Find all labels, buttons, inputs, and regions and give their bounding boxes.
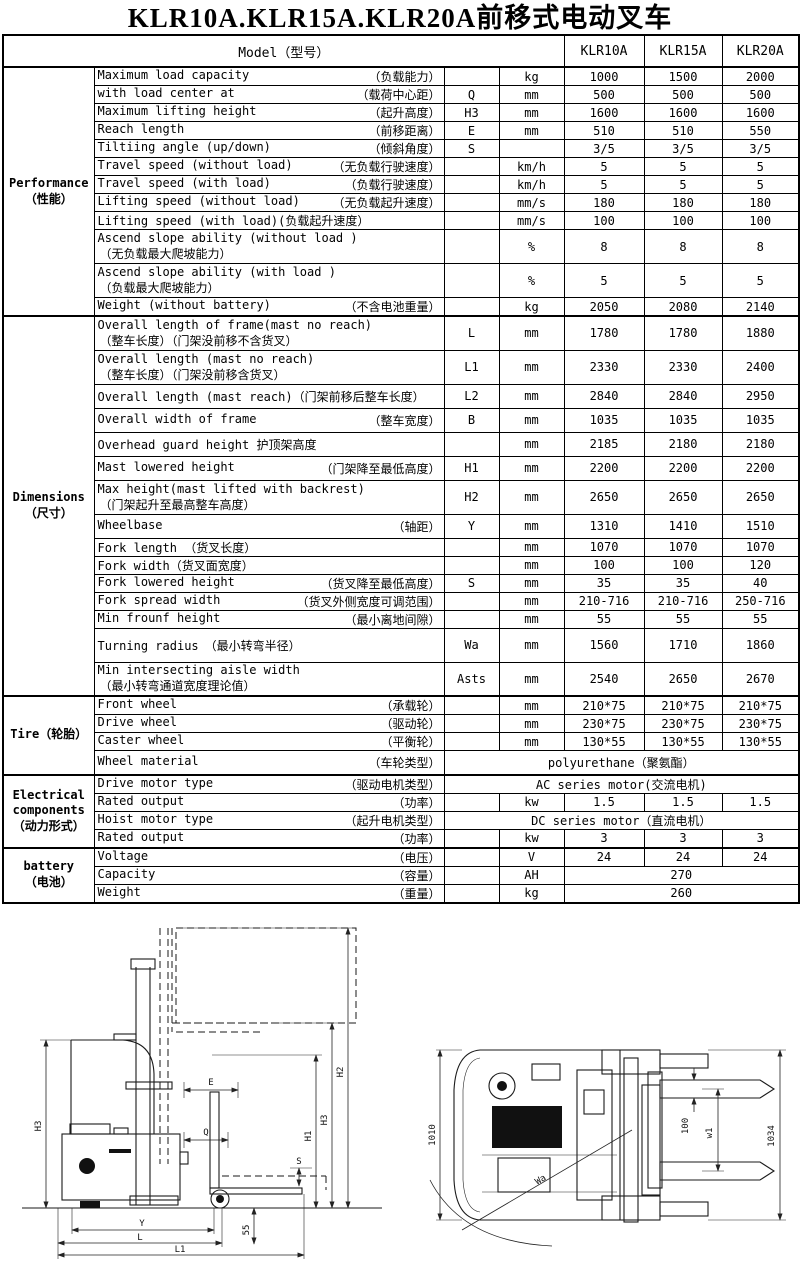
spec-value: 500 <box>644 86 722 104</box>
spec-value: 24 <box>644 848 722 867</box>
spec-unit: mm <box>499 456 564 480</box>
spec-value: 2180 <box>644 432 722 456</box>
spec-unit: mm <box>499 538 564 556</box>
spec-unit: mm <box>499 432 564 456</box>
spec-value: 130*55 <box>564 733 644 751</box>
dimension-ground-clearance: 55 <box>242 1208 254 1244</box>
spec-symbol: Y <box>444 514 499 538</box>
spec-value: 130*55 <box>644 733 722 751</box>
dim-label-100: 100 <box>681 1117 691 1133</box>
spec-row: Lifting speed (with load)(负载起升速度）mm/s100… <box>3 212 799 230</box>
spec-value: 500 <box>564 86 644 104</box>
spec-unit: mm <box>499 662 564 696</box>
spec-label: Fork length （货叉长度） <box>94 538 444 556</box>
spec-row: Tiltiing angle (up/down)（倾斜角度）S3/53/53/5 <box>3 140 799 158</box>
spec-value: 5 <box>564 158 644 176</box>
spec-merged-value: polyurethane（聚氨酯） <box>444 751 799 775</box>
spec-value: 1500 <box>644 67 722 86</box>
spec-symbol <box>444 212 499 230</box>
dim-label-s: S <box>296 1157 301 1167</box>
spec-value: 180 <box>564 194 644 212</box>
spec-value: 2180 <box>722 432 799 456</box>
spec-symbol: Q <box>444 86 499 104</box>
spec-value: 1600 <box>644 104 722 122</box>
side-view-drawing: E Q S 55 Y L <box>14 912 400 1262</box>
spec-value: 1000 <box>564 67 644 86</box>
dimension-q: Q <box>184 1128 228 1148</box>
category-0: Performance（性能） <box>3 67 94 316</box>
spec-unit: mm <box>499 408 564 432</box>
spec-unit: mm <box>499 86 564 104</box>
spec-value: 180 <box>722 194 799 212</box>
spec-symbol <box>444 696 499 715</box>
spec-value: 5 <box>644 158 722 176</box>
spec-unit: kg <box>499 298 564 317</box>
spec-value: 5 <box>564 176 644 194</box>
spec-value: 2650 <box>722 480 799 514</box>
spec-value: 510 <box>644 122 722 140</box>
spec-label: with load center at（载荷中心距） <box>94 86 444 104</box>
spec-unit: mm <box>499 384 564 408</box>
spec-label: Lifting speed (with load)(负载起升速度） <box>94 212 444 230</box>
spec-value: 1070 <box>722 538 799 556</box>
spec-value: 5 <box>722 264 799 298</box>
spec-symbol: H2 <box>444 480 499 514</box>
spec-value: 3/5 <box>722 140 799 158</box>
spec-unit: mm <box>499 480 564 514</box>
spec-symbol <box>444 158 499 176</box>
spec-value: 210*75 <box>722 696 799 715</box>
spec-value: 2330 <box>564 350 644 384</box>
spec-unit: mm <box>499 696 564 715</box>
spec-symbol <box>444 67 499 86</box>
spec-row: Mast lowered height（门架降至最低高度）H1mm2200220… <box>3 456 799 480</box>
spec-unit: mm <box>499 574 564 592</box>
spec-label: Tiltiing angle (up/down)（倾斜角度） <box>94 140 444 158</box>
spec-symbol <box>444 733 499 751</box>
spec-row: Overhead guard height 护顶架高度mm21852180218… <box>3 432 799 456</box>
dim-label-w1: w1 <box>705 1127 715 1138</box>
spec-value: 2840 <box>644 384 722 408</box>
spec-symbol <box>444 848 499 867</box>
truck-body-side <box>62 1034 188 1208</box>
spec-label: Maximum load capacity（负载能力） <box>94 67 444 86</box>
spec-label: Drive wheel（驱动轮） <box>94 715 444 733</box>
spec-symbol <box>444 538 499 556</box>
spec-unit: mm <box>499 610 564 628</box>
spec-value: 230*75 <box>722 715 799 733</box>
dimension-s: S <box>290 1157 312 1186</box>
spec-label: Mast lowered height（门架降至最低高度） <box>94 456 444 480</box>
spec-value: 35 <box>564 574 644 592</box>
spec-label: Capacity（容量） <box>94 866 444 884</box>
spec-label: Travel speed (without load)（无负载行驶速度） <box>94 158 444 176</box>
spec-value: 100 <box>722 212 799 230</box>
spec-unit: mm <box>499 556 564 574</box>
spec-value: 8 <box>644 230 722 264</box>
spec-value: 1600 <box>722 104 799 122</box>
spec-value: 2650 <box>644 480 722 514</box>
spec-unit: km/h <box>499 176 564 194</box>
spec-row: Overall length (mast reach)（门架前移后整车长度）L2… <box>3 384 799 408</box>
dimension-l: L <box>58 1208 222 1259</box>
spec-value: 2840 <box>564 384 644 408</box>
spec-merged-value: 260 <box>564 884 799 903</box>
spec-symbol: L <box>444 316 499 350</box>
spec-value: 230*75 <box>564 715 644 733</box>
spec-value: 1310 <box>564 514 644 538</box>
spec-row: Weight（重量）kg260 <box>3 884 799 903</box>
spec-value: 2140 <box>722 298 799 317</box>
spec-unit: kw <box>499 829 564 848</box>
spec-symbol <box>444 298 499 317</box>
spec-value: 2650 <box>564 480 644 514</box>
dim-label-e: E <box>208 1078 213 1088</box>
spec-unit: mm <box>499 514 564 538</box>
spec-label: Front wheel（承载轮） <box>94 696 444 715</box>
spec-value: 500 <box>722 86 799 104</box>
spec-row: with load center at（载荷中心距）Qmm500500500 <box>3 86 799 104</box>
model-klr15a: KLR15A <box>644 35 722 67</box>
category-2: Tire（轮胎） <box>3 696 94 775</box>
dim-label-h3-right: H3 <box>320 1114 330 1125</box>
spec-row: Fork length （货叉长度）mm107010701070 <box>3 538 799 556</box>
spec-value: 2000 <box>722 67 799 86</box>
spec-row: Min intersecting aisle width（最小转弯通道宽度理论值… <box>3 662 799 696</box>
spec-row: Hoist motor type（起升电机类型）DC series motor（… <box>3 811 799 829</box>
spec-row: Ascend slope ability (without load )（无负载… <box>3 230 799 264</box>
spec-symbol <box>444 176 499 194</box>
top-view-drawing: 1010 100 w1 1034 Wa <box>402 1030 792 1254</box>
spec-symbol: L2 <box>444 384 499 408</box>
spec-row: Overall width of frame（整车宽度）Bmm103510351… <box>3 408 799 432</box>
spec-value: 210*75 <box>564 696 644 715</box>
spec-symbol: E <box>444 122 499 140</box>
spec-unit: kg <box>499 884 564 903</box>
spec-label: Hoist motor type（起升电机类型） <box>94 811 444 829</box>
dim-label-1034: 1034 <box>767 1125 777 1147</box>
spec-row: battery（电池）Voltage（电压）V242424 <box>3 848 799 867</box>
dimension-fork-width: 100 <box>681 1068 694 1134</box>
spec-symbol <box>444 556 499 574</box>
spec-row: Max height(mast lifted with backrest)（门架… <box>3 480 799 514</box>
spec-unit: mm <box>499 104 564 122</box>
spec-unit: mm <box>499 350 564 384</box>
spec-value: 2400 <box>722 350 799 384</box>
raised-load-dashed <box>172 928 356 1032</box>
spec-value: 1510 <box>722 514 799 538</box>
dimension-y: Y <box>72 1208 214 1234</box>
spec-value: 100 <box>644 556 722 574</box>
spec-value: 2950 <box>722 384 799 408</box>
spec-value: 100 <box>564 212 644 230</box>
spec-value: 55 <box>564 610 644 628</box>
spec-row: Rated output（功率）kw1.51.51.5 <box>3 793 799 811</box>
category-3: Electricalcomponents（动力形式） <box>3 775 94 848</box>
table-header-row: Model（型号） KLR10A KLR15A KLR20A <box>3 35 799 67</box>
spec-label: Wheel material（车轮类型） <box>94 751 444 775</box>
dimension-h1: H1 <box>212 1055 322 1208</box>
spec-value: 3 <box>564 829 644 848</box>
spec-value: 100 <box>564 556 644 574</box>
spec-row: Reach length（前移距离）Emm510510550 <box>3 122 799 140</box>
spec-value: 24 <box>564 848 644 867</box>
spec-value: 2670 <box>722 662 799 696</box>
spec-label: Rated output（功率） <box>94 829 444 848</box>
spec-label: Overhead guard height 护顶架高度 <box>94 432 444 456</box>
spec-row: Rated output（功率）kw333 <box>3 829 799 848</box>
spec-value: 5 <box>644 176 722 194</box>
spec-row: Fork width（货叉面宽度）mm100100120 <box>3 556 799 574</box>
spec-value: 5 <box>722 176 799 194</box>
spec-label: Maximum lifting height（起升高度） <box>94 104 444 122</box>
spec-value: 24 <box>722 848 799 867</box>
spec-unit: % <box>499 230 564 264</box>
spec-value: 210*75 <box>644 696 722 715</box>
spec-unit: mm <box>499 122 564 140</box>
spec-value: 1035 <box>722 408 799 432</box>
spec-value: 1.5 <box>722 793 799 811</box>
spec-symbol: Asts <box>444 662 499 696</box>
spec-row: Min frounf height（最小离地间隙）mm555555 <box>3 610 799 628</box>
dim-label-l: L <box>137 1233 142 1243</box>
spec-value: 2080 <box>644 298 722 317</box>
spec-unit: mm <box>499 592 564 610</box>
dimension-fork-spread: w1 <box>702 1089 724 1171</box>
dim-label-l1: L1 <box>175 1245 186 1255</box>
spec-row: Travel speed (without load)（无负载行驶速度）km/h… <box>3 158 799 176</box>
dim-label-h1: H1 <box>304 1130 314 1141</box>
spec-value: 1780 <box>644 316 722 350</box>
spec-row: Fork spread width（货叉外侧宽度可调范围）mm210-71621… <box>3 592 799 610</box>
spec-label: Overall length of frame(mast no reach)（整… <box>94 316 444 350</box>
category-1: Dimensions（尺寸） <box>3 316 94 696</box>
spec-unit: V <box>499 848 564 867</box>
spec-value: 550 <box>722 122 799 140</box>
spec-value: 40 <box>722 574 799 592</box>
spec-value: 1600 <box>564 104 644 122</box>
spec-row: Capacity（容量）AH270 <box>3 866 799 884</box>
spec-label: Wheelbase（轴距） <box>94 514 444 538</box>
lowered-fork-side <box>210 1092 326 1208</box>
page-title: KLR10A.KLR15A.KLR20A前移式电动叉车 <box>0 0 800 34</box>
spec-value: 1070 <box>644 538 722 556</box>
spec-value: 2050 <box>564 298 644 317</box>
spec-label: Weight（重量） <box>94 884 444 903</box>
spec-value: 35 <box>644 574 722 592</box>
category-4: battery（电池） <box>3 848 94 903</box>
truck-body-top <box>454 1050 620 1220</box>
dim-label-y: Y <box>139 1219 145 1229</box>
spec-row: Wheelbase（轴距）Ymm131014101510 <box>3 514 799 538</box>
spec-label: Ascend slope ability (with load )（负载最大爬坡… <box>94 264 444 298</box>
spec-unit: mm/s <box>499 194 564 212</box>
spec-label: Min intersecting aisle width（最小转弯通道宽度理论值… <box>94 662 444 696</box>
spec-label: Caster wheel（平衡轮） <box>94 733 444 751</box>
spec-row: Weight (without battery)（不含电池重量）kg205020… <box>3 298 799 317</box>
spec-label: Weight (without battery)（不含电池重量） <box>94 298 444 317</box>
spec-label: Reach length（前移距离） <box>94 122 444 140</box>
spec-unit: AH <box>499 866 564 884</box>
spec-row: Wheel material（车轮类型）polyurethane（聚氨酯） <box>3 751 799 775</box>
spec-unit: mm/s <box>499 212 564 230</box>
dimension-h2: H2 <box>176 928 354 1208</box>
spec-value: 5 <box>564 264 644 298</box>
spec-merged-value: AC series motor(交流电机) <box>444 775 799 794</box>
spec-symbol: B <box>444 408 499 432</box>
dimension-h3-left: H3 <box>34 1040 71 1208</box>
spec-value: 2200 <box>722 456 799 480</box>
spec-value: 1410 <box>644 514 722 538</box>
spec-value: 1070 <box>564 538 644 556</box>
spec-symbol <box>444 829 499 848</box>
spec-row: Lifting speed (without load)（无负载起升速度）mm/… <box>3 194 799 212</box>
spec-value: 1035 <box>564 408 644 432</box>
spec-value: 2540 <box>564 662 644 696</box>
spec-row: Turning radius （最小转弯半径）Wamm156017101860 <box>3 628 799 662</box>
spec-value: 3 <box>722 829 799 848</box>
spec-label: Fork width（货叉面宽度） <box>94 556 444 574</box>
spec-value: 120 <box>722 556 799 574</box>
spec-value: 3/5 <box>564 140 644 158</box>
dimension-h3-right: H3 <box>272 1023 338 1208</box>
spec-label: Overall length (mast no reach)（整车长度）（门架没… <box>94 350 444 384</box>
spec-unit: % <box>499 264 564 298</box>
spec-unit: mm <box>499 316 564 350</box>
spec-label: Fork lowered height（货叉降至最低高度） <box>94 574 444 592</box>
spec-label: Lifting speed (without load)（无负载起升速度） <box>94 194 444 212</box>
spec-merged-value: DC series motor（直流电机） <box>444 811 799 829</box>
spec-value: 1880 <box>722 316 799 350</box>
spec-value: 3/5 <box>644 140 722 158</box>
spec-value: 2650 <box>644 662 722 696</box>
mast-side <box>126 928 178 1205</box>
spec-row: Ascend slope ability (with load )（负载最大爬坡… <box>3 264 799 298</box>
spec-row: Electricalcomponents（动力形式）Drive motor ty… <box>3 775 799 794</box>
spec-value: 2200 <box>644 456 722 480</box>
spec-symbol <box>444 715 499 733</box>
spec-value: 100 <box>644 212 722 230</box>
spec-unit: kg <box>499 67 564 86</box>
spec-unit: km/h <box>499 158 564 176</box>
spec-label: Turning radius （最小转弯半径） <box>94 628 444 662</box>
spec-row: Fork lowered height（货叉降至最低高度）Smm353540 <box>3 574 799 592</box>
spec-row: Performance（性能）Maximum load capacity（负载能… <box>3 67 799 86</box>
dim-label-h3-left: H3 <box>34 1120 44 1131</box>
spec-value: 2200 <box>564 456 644 480</box>
spec-row: Maximum lifting height（起升高度）H3mm16001600… <box>3 104 799 122</box>
spec-label: Drive motor type（驱动电机类型） <box>94 775 444 794</box>
spec-label: Voltage（电压） <box>94 848 444 867</box>
spec-value: 1860 <box>722 628 799 662</box>
spec-label: Rated output（功率） <box>94 793 444 811</box>
dimension-e: E <box>184 1078 238 1098</box>
forks-top <box>660 1080 774 1180</box>
mast-carriage-top <box>624 1058 662 1222</box>
spec-unit: mm <box>499 628 564 662</box>
spec-value: 180 <box>644 194 722 212</box>
technical-drawings: E Q S 55 Y L <box>0 904 800 1270</box>
spec-symbol: H1 <box>444 456 499 480</box>
dim-label-1010: 1010 <box>428 1124 438 1146</box>
spec-symbol <box>444 592 499 610</box>
spec-label: Ascend slope ability (without load )（无负载… <box>94 230 444 264</box>
spec-value: 2185 <box>564 432 644 456</box>
spec-value: 250-716 <box>722 592 799 610</box>
spec-symbol: S <box>444 140 499 158</box>
spec-label: Min frounf height（最小离地间隙） <box>94 610 444 628</box>
spec-value: 210-716 <box>564 592 644 610</box>
spec-value: 1780 <box>564 316 644 350</box>
spec-symbol <box>444 610 499 628</box>
spec-symbol: H3 <box>444 104 499 122</box>
spec-symbol <box>444 230 499 264</box>
spec-symbol <box>444 194 499 212</box>
spec-merged-value: 270 <box>564 866 799 884</box>
spec-value: 230*75 <box>644 715 722 733</box>
spec-label: Max height(mast lifted with backrest)（门架… <box>94 480 444 514</box>
dim-label-55: 55 <box>242 1224 252 1235</box>
spec-symbol <box>444 866 499 884</box>
spec-value: 8 <box>564 230 644 264</box>
spec-value: 1710 <box>644 628 722 662</box>
spec-row: Overall length (mast no reach)（整车长度）（门架没… <box>3 350 799 384</box>
model-label-cell: Model（型号） <box>3 35 564 67</box>
spec-unit: kw <box>499 793 564 811</box>
spec-row: Caster wheel（平衡轮）mm130*55130*55130*55 <box>3 733 799 751</box>
spec-row: Tire（轮胎）Front wheel（承载轮）mm210*75210*7521… <box>3 696 799 715</box>
dim-label-q: Q <box>203 1128 208 1138</box>
spec-label: Fork spread width（货叉外侧宽度可调范围） <box>94 592 444 610</box>
spec-unit: mm <box>499 715 564 733</box>
spec-symbol: S <box>444 574 499 592</box>
spec-value: 1.5 <box>564 793 644 811</box>
spec-row: Drive wheel（驱动轮）mm230*75230*75230*75 <box>3 715 799 733</box>
spec-symbol: L1 <box>444 350 499 384</box>
spec-value: 55 <box>722 610 799 628</box>
spec-label: Overall width of frame（整车宽度） <box>94 408 444 432</box>
spec-value: 130*55 <box>722 733 799 751</box>
spec-label: Travel speed (with load)（负载行驶速度） <box>94 176 444 194</box>
spec-value: 55 <box>644 610 722 628</box>
model-klr10a: KLR10A <box>564 35 644 67</box>
spec-row: Dimensions（尺寸）Overall length of frame(ma… <box>3 316 799 350</box>
dimension-overall-width: 1034 <box>708 1050 786 1220</box>
spec-symbol <box>444 432 499 456</box>
model-klr20a: KLR20A <box>722 35 799 67</box>
spec-value: 3 <box>644 829 722 848</box>
spec-value: 8 <box>722 230 799 264</box>
spec-value: 1.5 <box>644 793 722 811</box>
spec-value: 1560 <box>564 628 644 662</box>
spec-value: 210-716 <box>644 592 722 610</box>
spec-table: Model（型号） KLR10A KLR15A KLR20A Performan… <box>2 34 800 904</box>
spec-value: 2330 <box>644 350 722 384</box>
spec-symbol <box>444 884 499 903</box>
dim-label-wa: Wa <box>534 1173 548 1187</box>
spec-label: Overall length (mast reach)（门架前移后整车长度） <box>94 384 444 408</box>
spec-value: 5 <box>644 264 722 298</box>
spec-symbol: Wa <box>444 628 499 662</box>
spec-row: Travel speed (with load)（负载行驶速度）km/h555 <box>3 176 799 194</box>
spec-value: 1035 <box>644 408 722 432</box>
spec-value: 5 <box>722 158 799 176</box>
dimension-body-width: 1010 <box>428 1050 462 1220</box>
spec-value: 510 <box>564 122 644 140</box>
spec-symbol <box>444 264 499 298</box>
spec-unit: mm <box>499 733 564 751</box>
dim-label-h2: H2 <box>336 1066 346 1077</box>
